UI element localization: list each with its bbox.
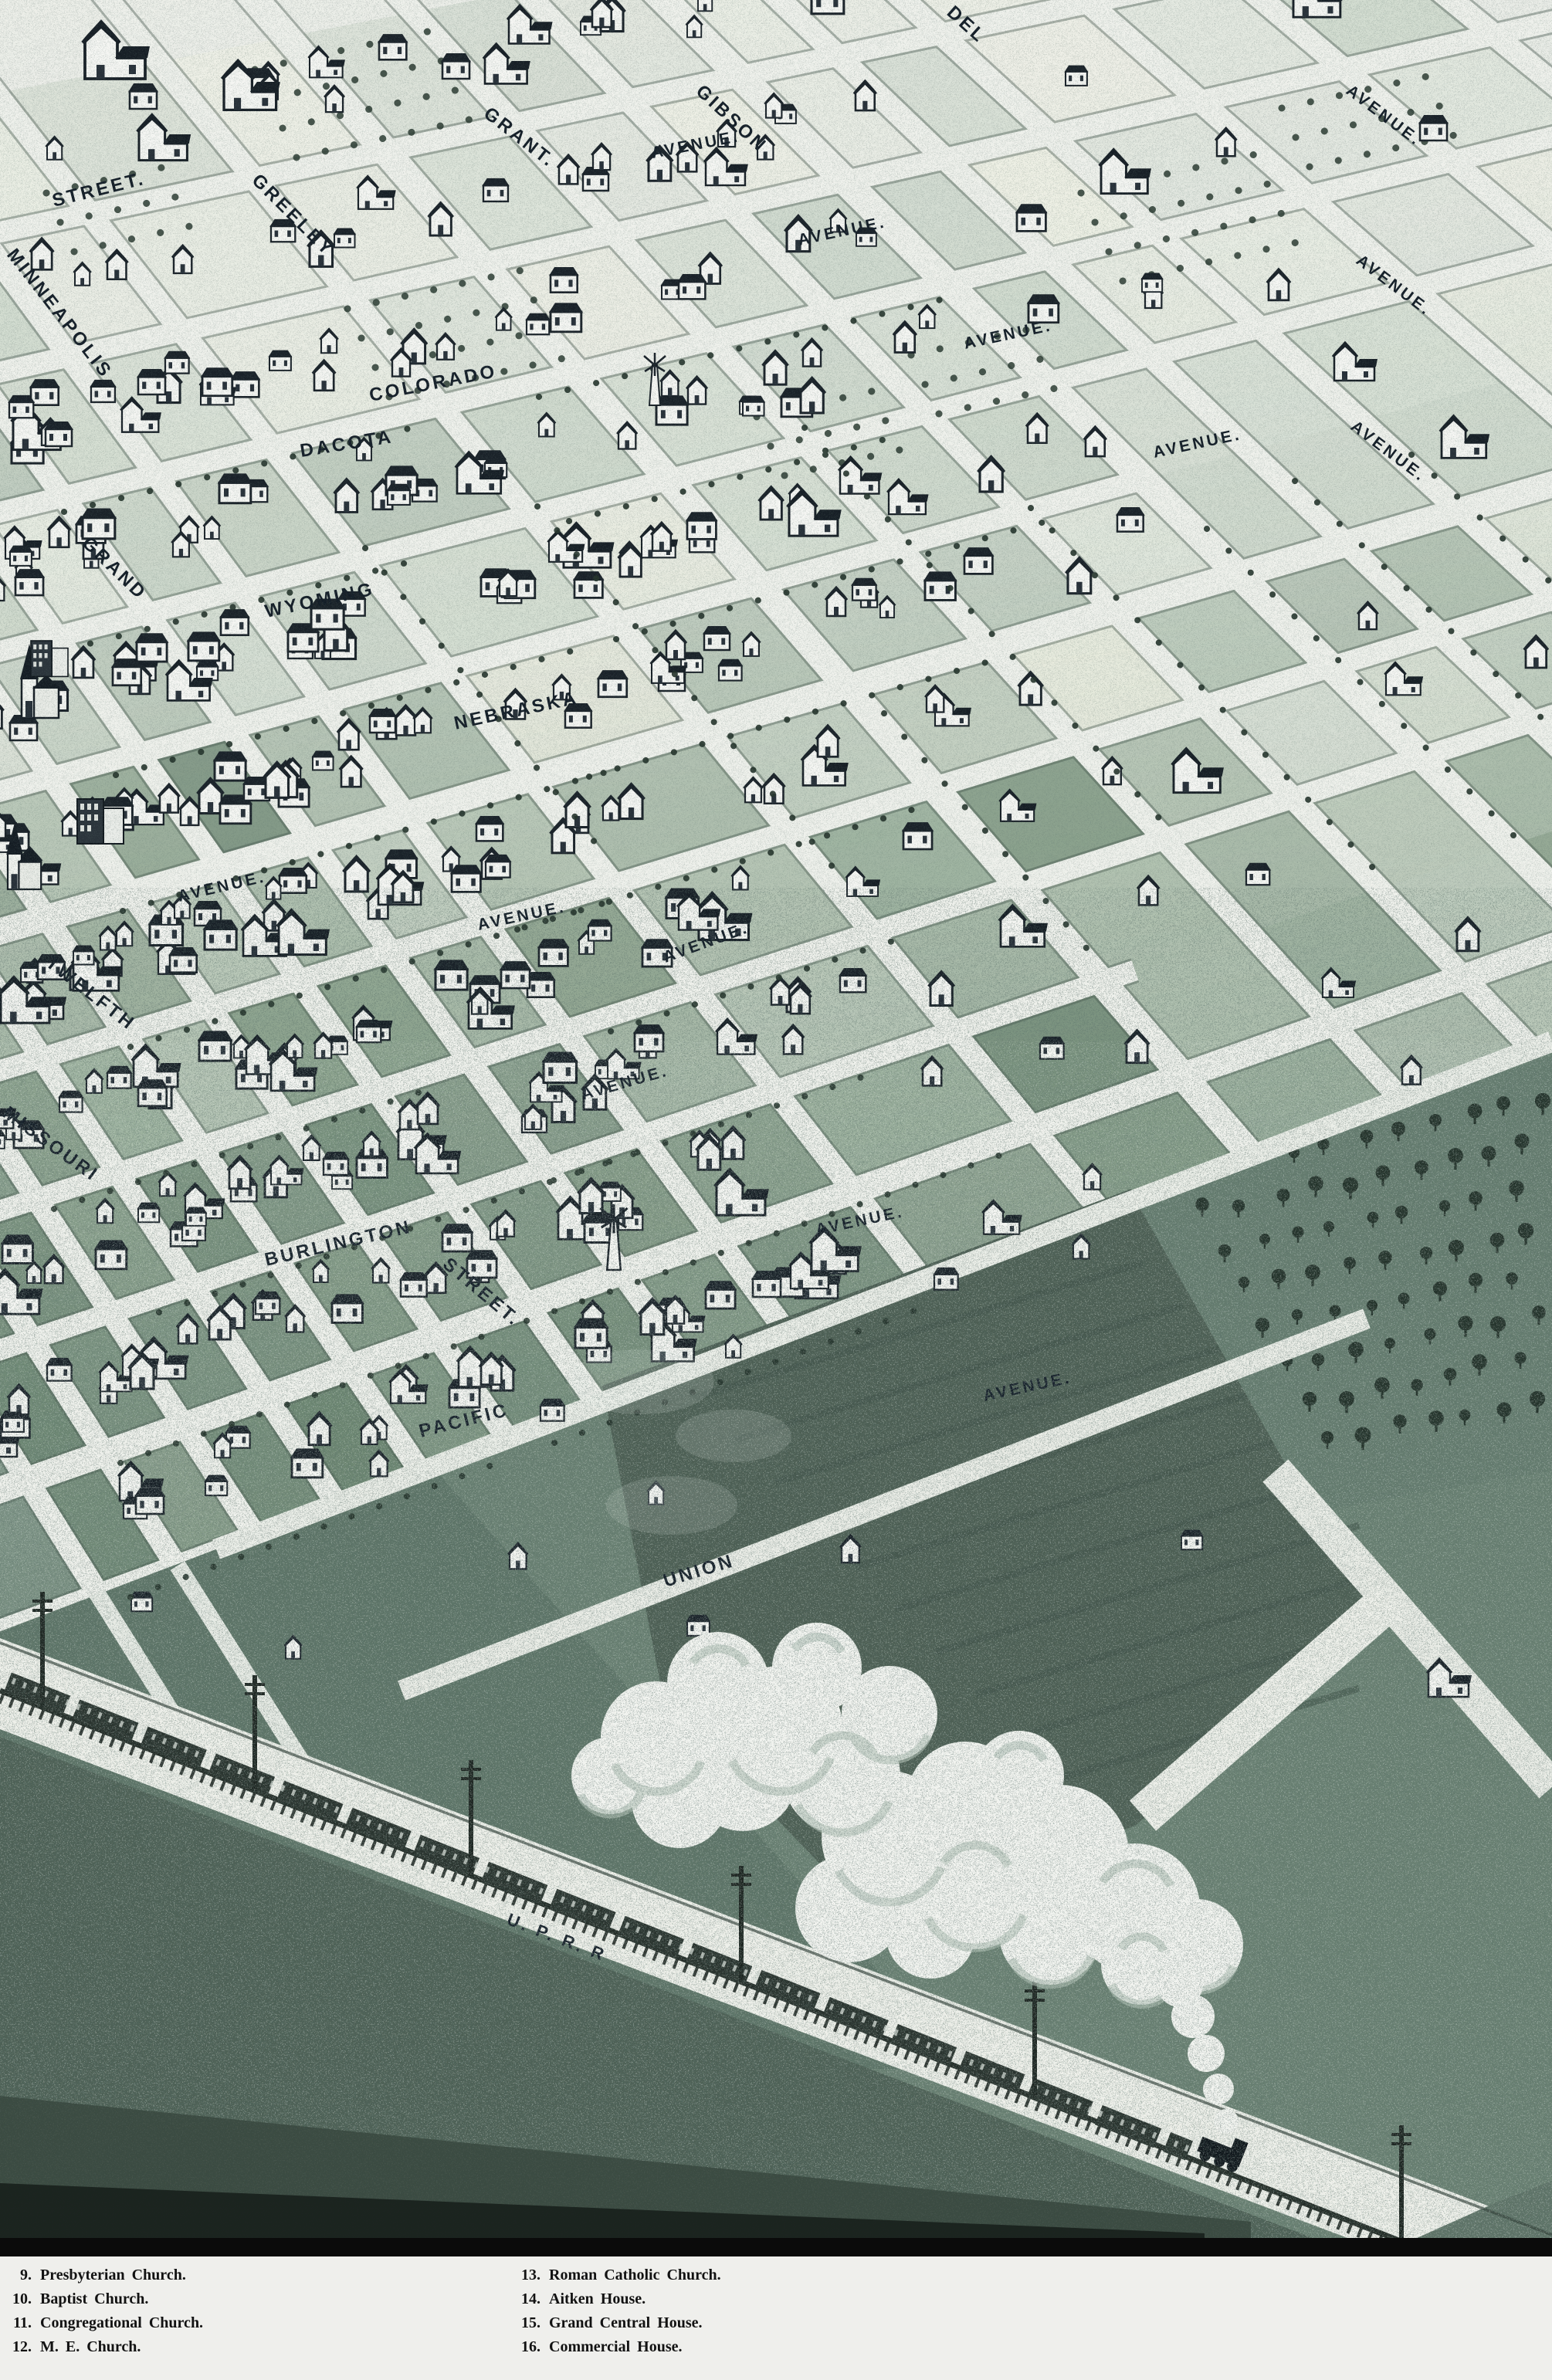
svg-text:Presbyterian Church.: Presbyterian Church. — [40, 2267, 186, 2284]
svg-text:Baptist Church.: Baptist Church. — [40, 2290, 148, 2307]
svg-text:Aitken House.: Aitken House. — [549, 2290, 646, 2307]
svg-text:16.: 16. — [521, 2338, 540, 2355]
svg-text:Commercial House.: Commercial House. — [549, 2338, 683, 2355]
svg-text:Congregational Church.: Congregational Church. — [40, 2314, 203, 2331]
svg-text:11.: 11. — [13, 2314, 32, 2331]
svg-text:14.: 14. — [521, 2290, 540, 2307]
svg-text:13.: 13. — [521, 2267, 540, 2284]
svg-text:M. E. Church.: M. E. Church. — [40, 2338, 141, 2355]
svg-text:10.: 10. — [12, 2290, 32, 2307]
svg-text:12.: 12. — [12, 2338, 32, 2355]
svg-text:Roman Catholic Church.: Roman Catholic Church. — [549, 2267, 721, 2284]
svg-text:9.: 9. — [20, 2267, 32, 2284]
svg-text:15.: 15. — [521, 2314, 540, 2331]
svg-text:Grand Central House.: Grand Central House. — [549, 2314, 703, 2331]
